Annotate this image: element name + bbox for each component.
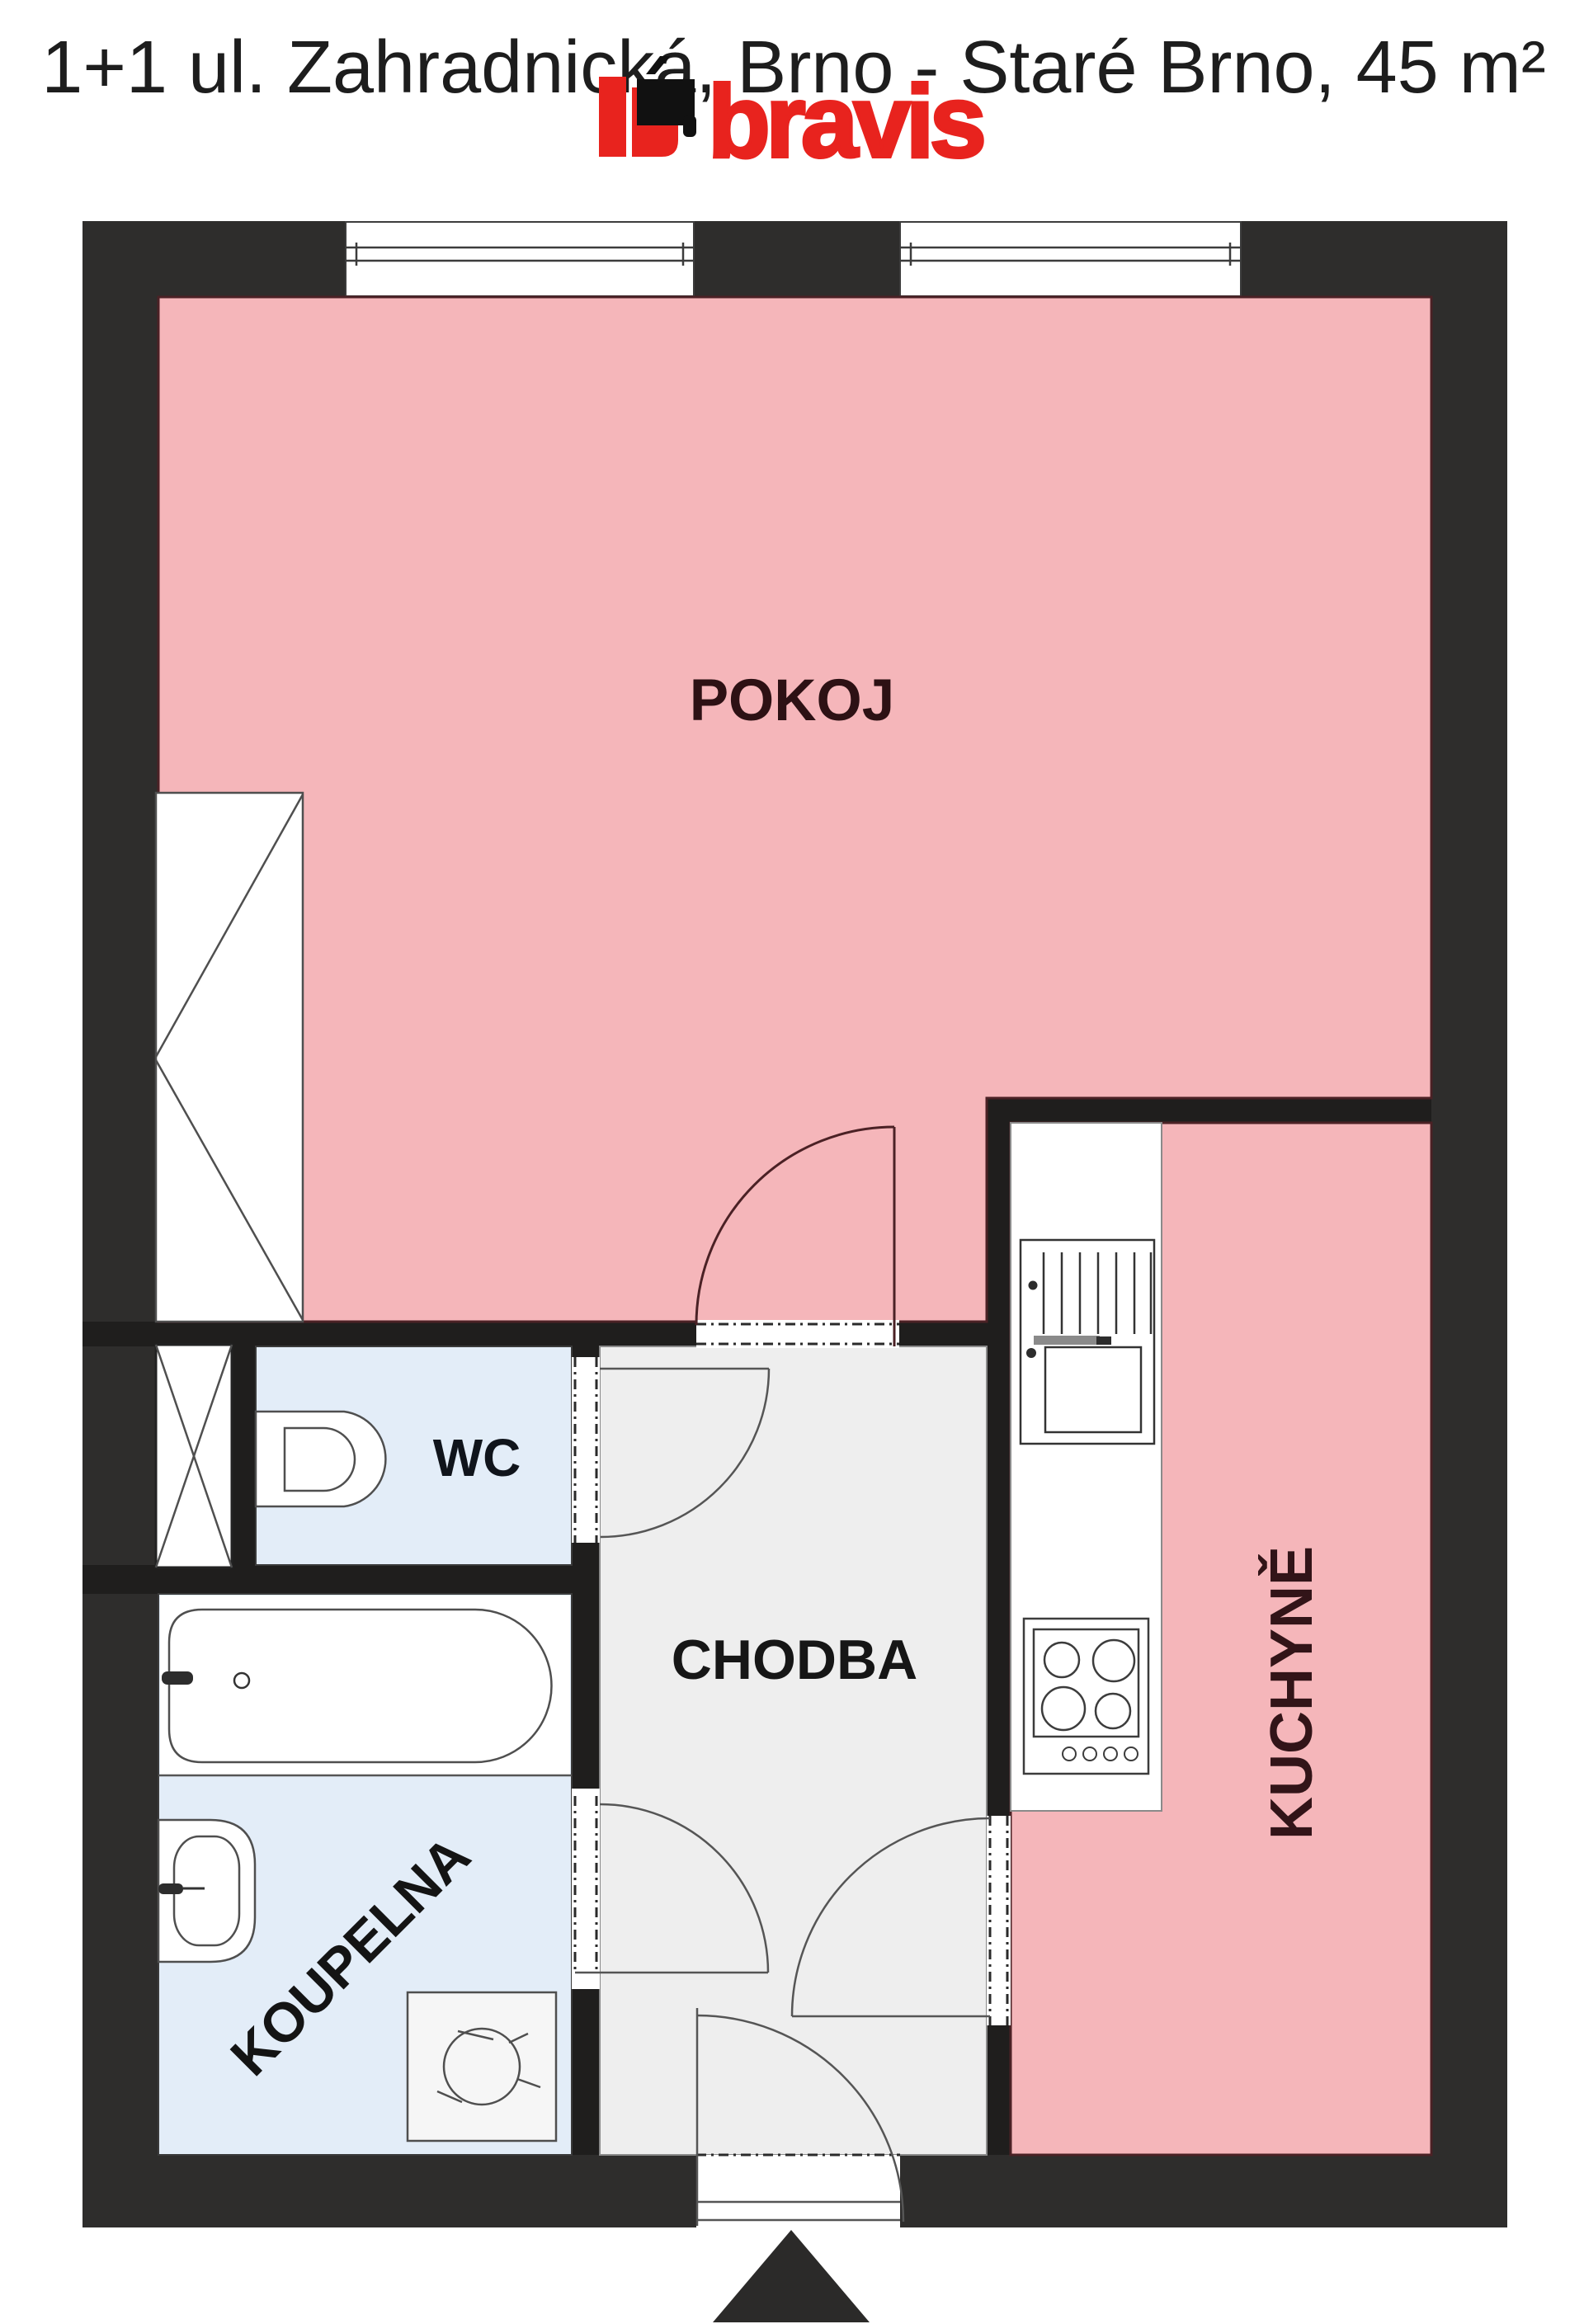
svg-text:POKOJ: POKOJ bbox=[690, 668, 895, 733]
svg-text:KUCHYNĚ: KUCHYNĚ bbox=[1258, 1546, 1325, 1840]
svg-text:WC: WC bbox=[433, 1428, 521, 1487]
svg-text:bravis: bravis bbox=[708, 65, 983, 179]
svg-text:CHODBA: CHODBA bbox=[672, 1629, 917, 1691]
